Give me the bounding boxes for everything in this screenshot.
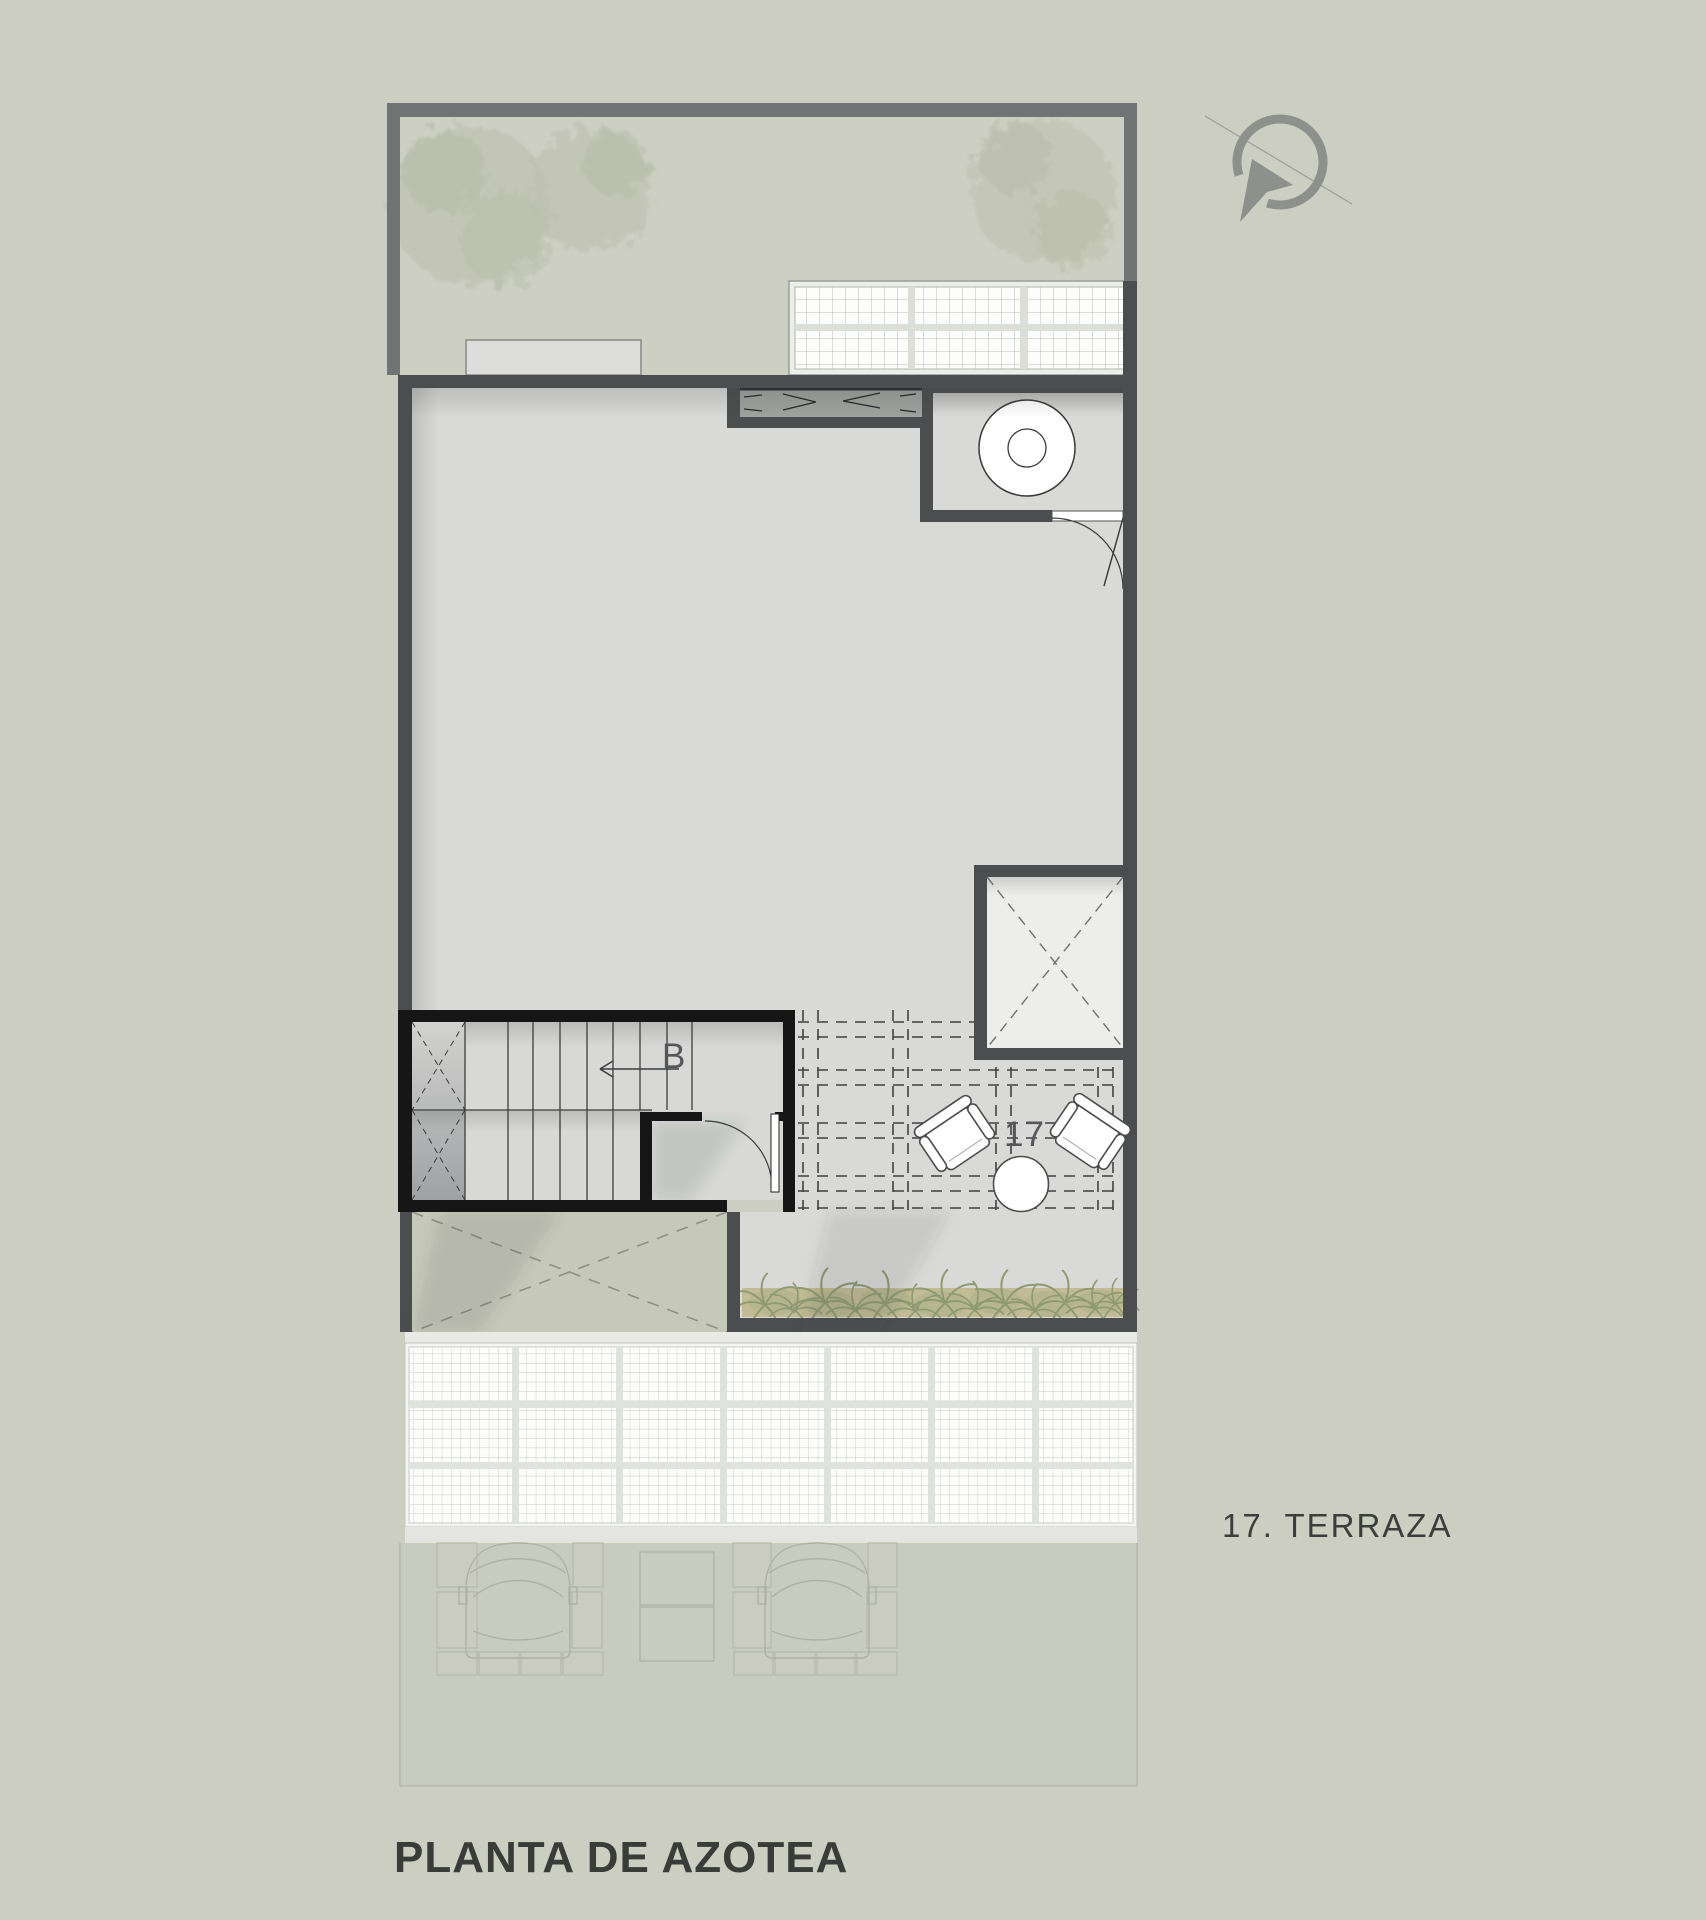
skylight bbox=[974, 865, 1135, 1060]
stair-direction-label: B bbox=[662, 1037, 686, 1076]
terrace-number-label: 17 bbox=[1004, 1115, 1045, 1154]
facade-grid-panel-bottom bbox=[405, 1332, 1137, 1543]
floor-plan-svg: B 17 bbox=[0, 0, 1706, 1920]
round-table bbox=[994, 1157, 1049, 1212]
page-title: PLANTA DE AZOTEA bbox=[394, 1833, 848, 1882]
tree-icon bbox=[528, 128, 652, 252]
stair-vestibule bbox=[640, 1112, 783, 1200]
vestibule-door-leaf bbox=[771, 1114, 779, 1192]
tree-icon bbox=[390, 125, 551, 285]
roof-equipment-pad bbox=[466, 340, 641, 375]
roof-plan-sheet: B 17 bbox=[0, 0, 1706, 1920]
stairwell: B bbox=[398, 1010, 795, 1212]
terrace-legend: 17. TERRAZA bbox=[1222, 1507, 1452, 1544]
carport-ghost bbox=[400, 1543, 1137, 1786]
pergola-grid-panel-top bbox=[789, 281, 1133, 375]
